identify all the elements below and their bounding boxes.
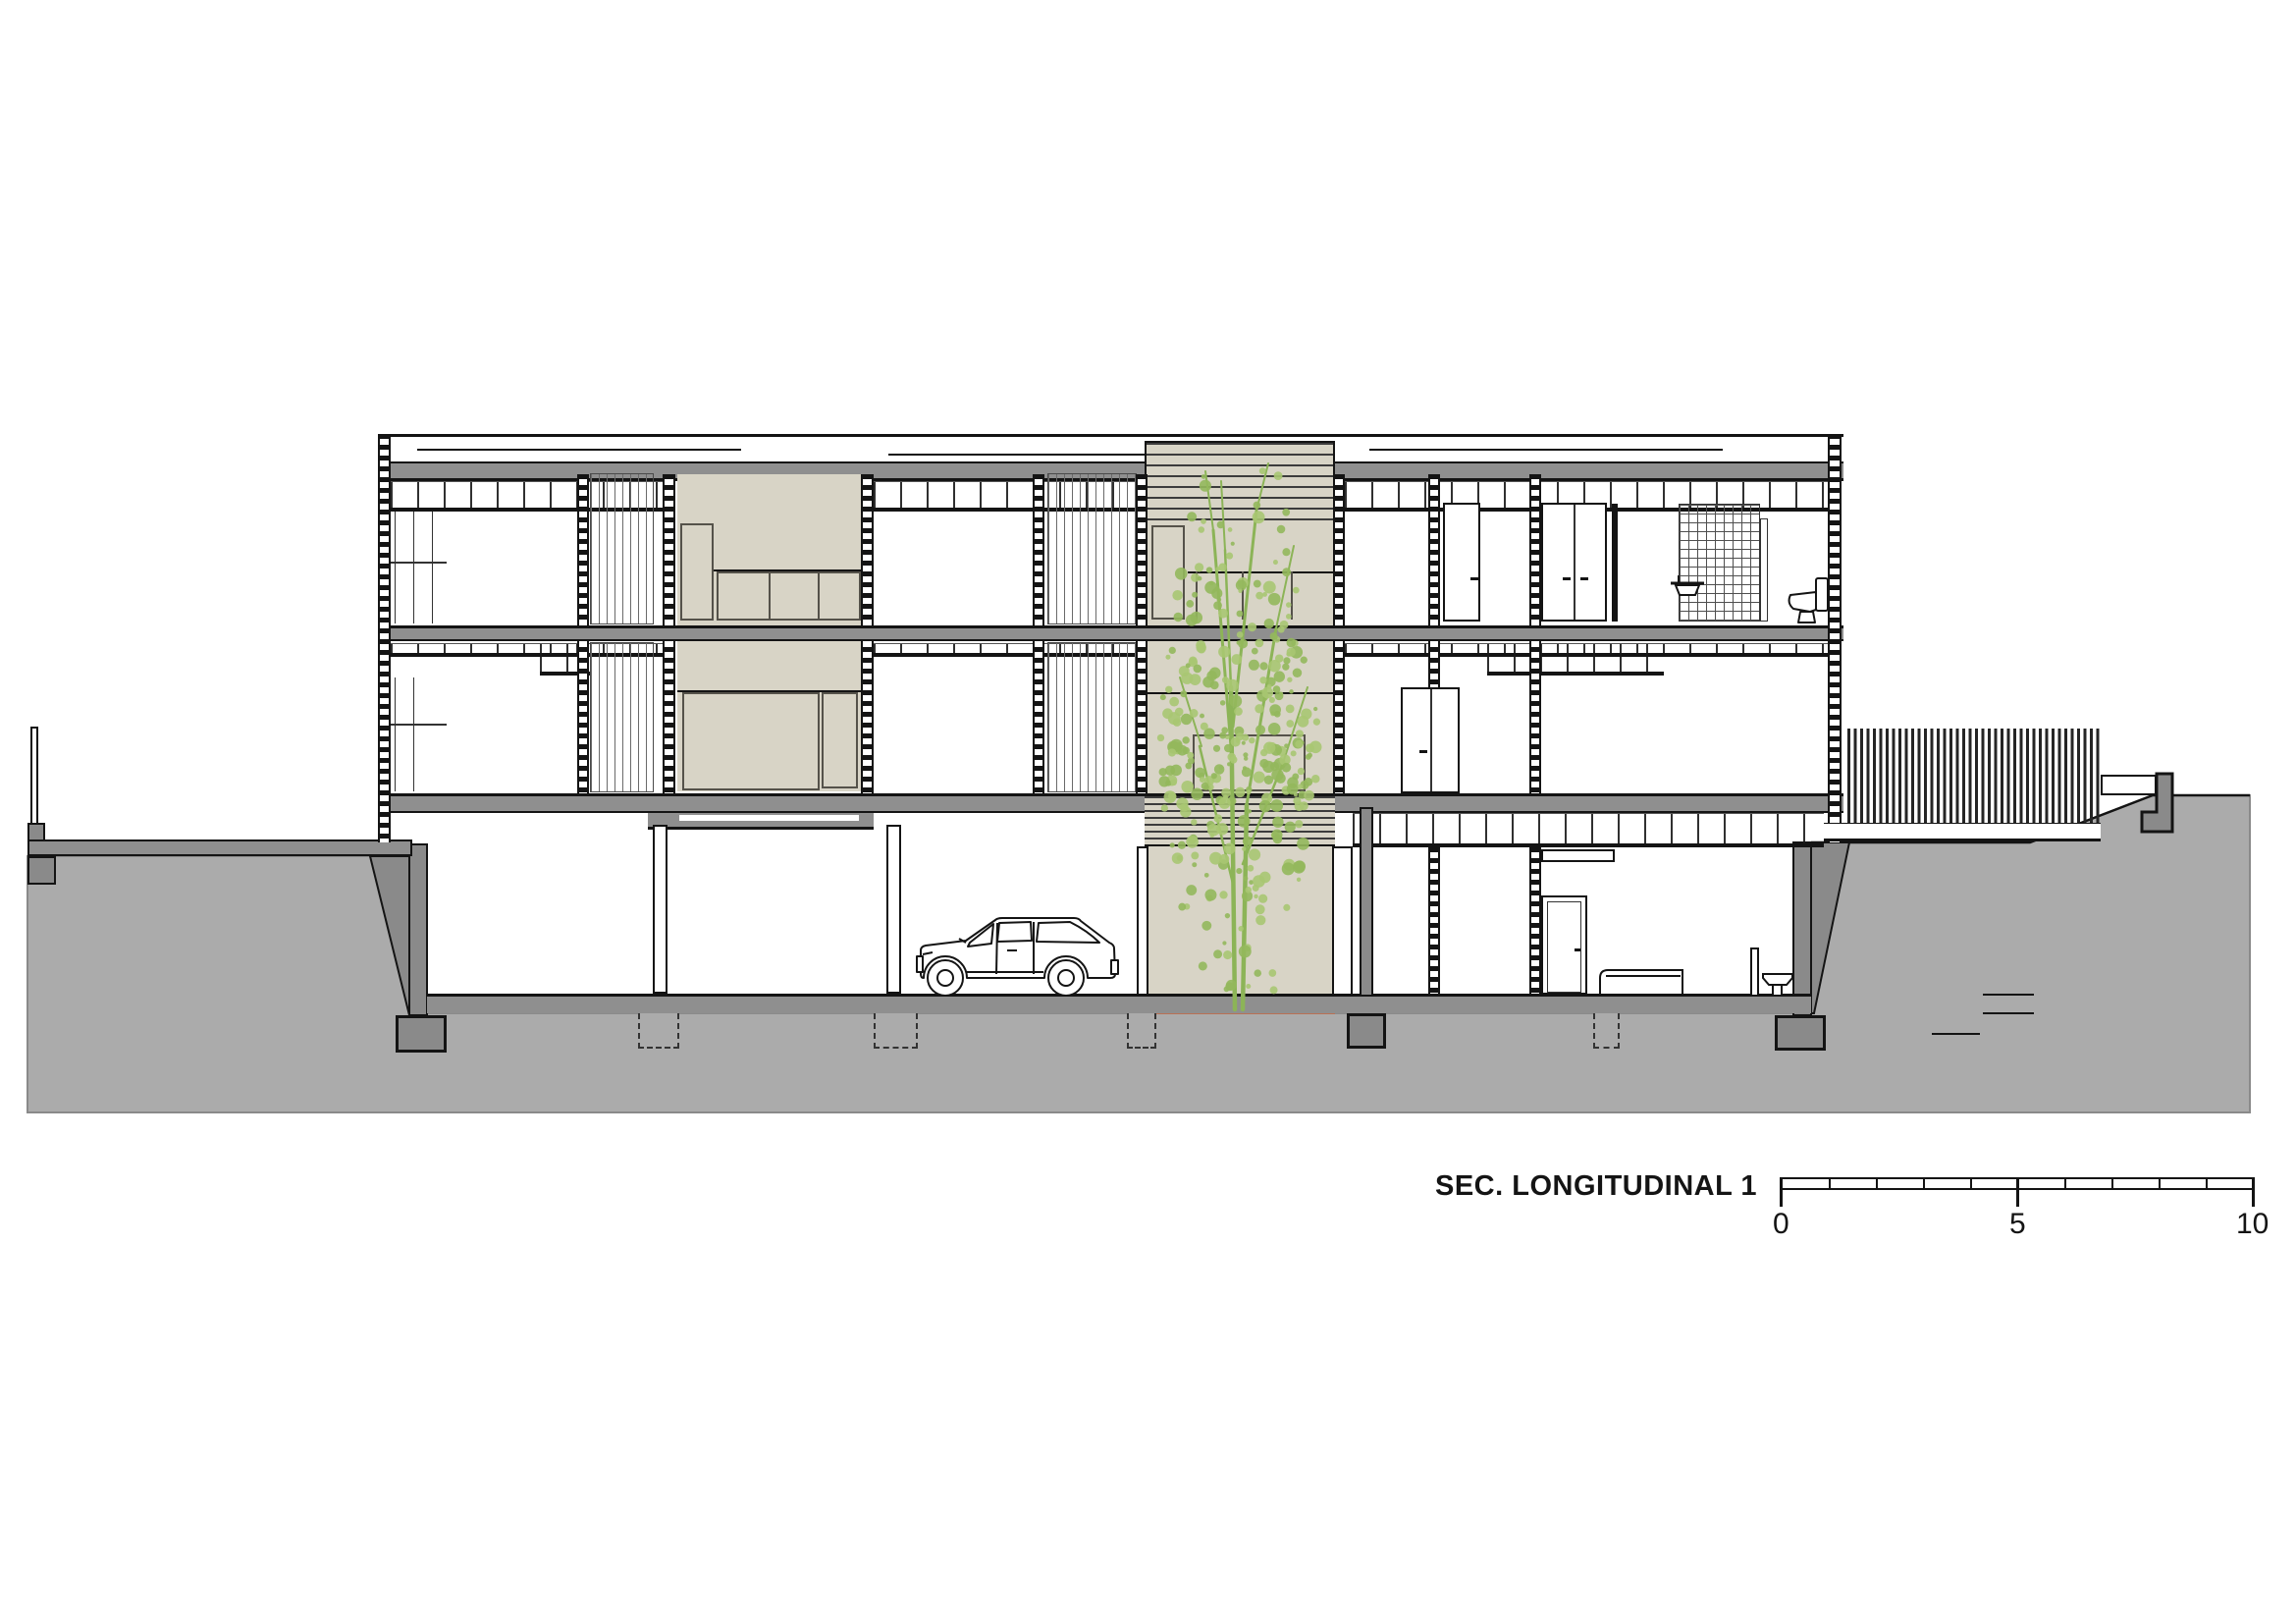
scale-tick-minor [1829, 1179, 1831, 1188]
scale-tick-minor [1970, 1179, 1972, 1188]
scale-tick-major [2016, 1177, 2019, 1207]
scale-tick-minor [1876, 1179, 1878, 1188]
scale-tick-minor [2064, 1179, 2066, 1188]
section-drawing: SEC. LONGITUDINAL 1 0 5 10 [0, 0, 2296, 1624]
scale-tick-minor [1923, 1179, 1925, 1188]
scale-tick-minor [2111, 1179, 2113, 1188]
scale-tick-major [2252, 1177, 2255, 1207]
scale-tick-minor [2159, 1179, 2161, 1188]
scale-tick-minor [2206, 1179, 2208, 1188]
scale-number-mid: 5 [2009, 1208, 2026, 1241]
scale-number-start: 0 [1773, 1208, 1789, 1241]
section-title: SEC. LONGITUDINAL 1 [1335, 1170, 1757, 1203]
scale-number-end: 10 [2236, 1208, 2269, 1241]
courtyard-tree [0, 0, 2296, 1624]
scale-tick-major [1780, 1177, 1783, 1207]
